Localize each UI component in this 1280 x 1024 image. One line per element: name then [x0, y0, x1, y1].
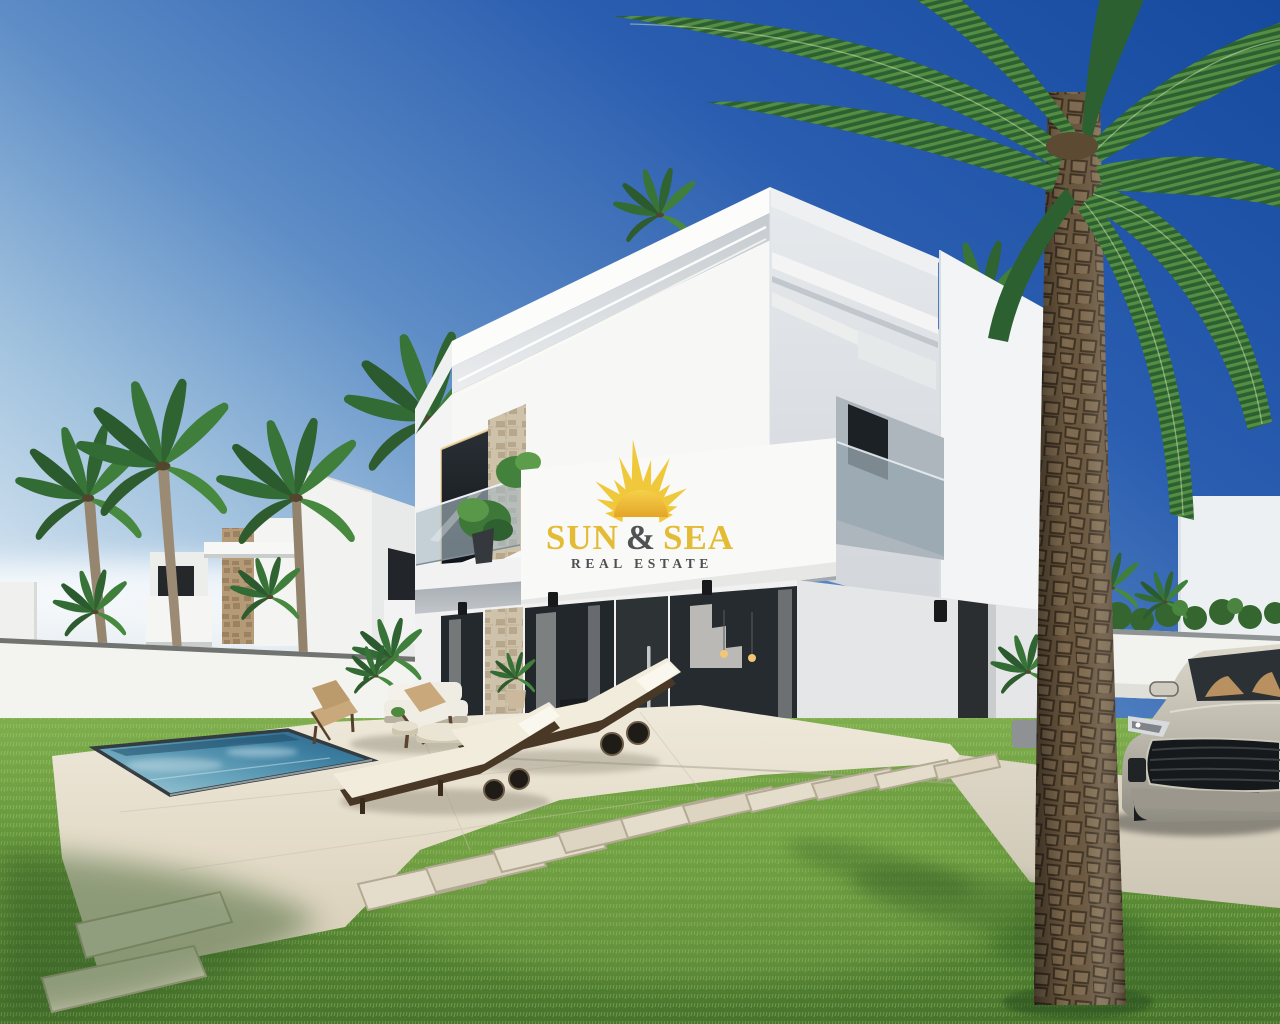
car-mirror [1150, 682, 1178, 696]
car-grille [1146, 738, 1280, 791]
wall-sconce [702, 580, 712, 595]
logo-subtitle: REAL ESTATE [571, 556, 713, 571]
real-estate-photo: SUN&SEA REAL ESTATE [0, 0, 1280, 1024]
wall-sconce [458, 602, 467, 615]
wall-sconce [934, 600, 947, 622]
wall-sconce [548, 592, 558, 607]
logo-text: SUN&SEA [546, 518, 734, 557]
